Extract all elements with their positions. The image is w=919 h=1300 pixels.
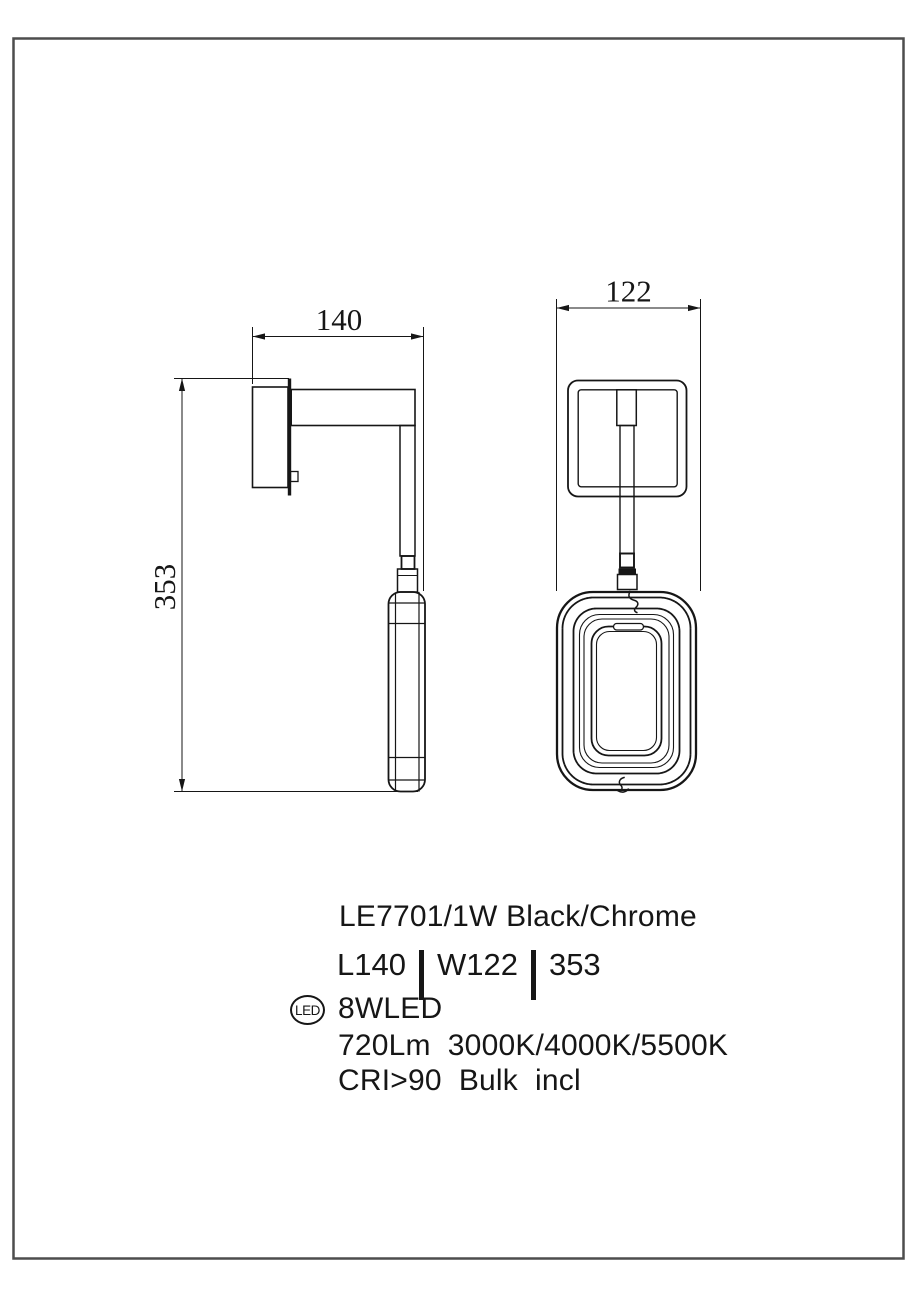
dim-arm-length: 140 — [253, 302, 424, 591]
arrowhead-up — [179, 379, 185, 392]
technical-drawing: 140 353 122 — [0, 0, 919, 1300]
separator-bar — [531, 950, 536, 1000]
arrowhead-right — [688, 305, 701, 311]
model-title: LE7701/1W Black/Chrome — [339, 900, 697, 935]
cri-spec: CRI>90 Bulk incl — [338, 1064, 581, 1099]
side-wall-plate — [253, 387, 289, 488]
side-rod — [400, 426, 415, 557]
front-lamp-panel — [592, 627, 662, 756]
side-plate-clip — [291, 472, 299, 482]
led-badge: LED — [290, 995, 325, 1025]
arrowhead-right — [411, 333, 424, 339]
dim-arm-length-label: 140 — [316, 302, 363, 337]
front-lamp-outer-rim — [557, 592, 696, 790]
front-rod-band — [619, 569, 637, 575]
side-rod-collar — [398, 569, 418, 592]
arrowhead-left — [253, 333, 266, 339]
side-rod-joint — [402, 556, 415, 569]
dim-shade-width-label: 122 — [605, 274, 652, 309]
arrowhead-left — [557, 305, 570, 311]
front-rod-collar — [618, 575, 638, 590]
front-rod — [620, 426, 634, 554]
side-view — [253, 379, 426, 792]
front-wall-plate — [568, 381, 687, 497]
front-lamp-panel-inner — [597, 632, 657, 751]
led-badge-label: LED — [295, 1003, 320, 1018]
dim-overall-height-label: 353 — [147, 564, 182, 611]
power-spec: 8WLED — [338, 992, 442, 1027]
front-wall-plate-inner — [578, 390, 677, 487]
front-lamp-stitch-ring-inner — [574, 609, 680, 774]
width-spec: W122 — [437, 948, 518, 982]
output-spec: 720Lm 3000K/4000K/5500K — [338, 1029, 728, 1064]
dim-overall-height: 353 — [147, 379, 418, 792]
height-spec: 353 — [549, 948, 601, 982]
front-lamp-ring — [580, 615, 674, 768]
length-spec: L140 — [337, 948, 406, 982]
drawing-sheet: 140 353 122 LE7701/1W Black/Chrome L140 … — [0, 0, 919, 1300]
front-rod-joint — [620, 554, 634, 568]
front-lamp-notch — [614, 624, 644, 631]
arrowhead-down — [179, 779, 185, 792]
side-arm — [291, 390, 415, 426]
front-view — [557, 381, 696, 793]
front-rod-top — [617, 390, 637, 426]
